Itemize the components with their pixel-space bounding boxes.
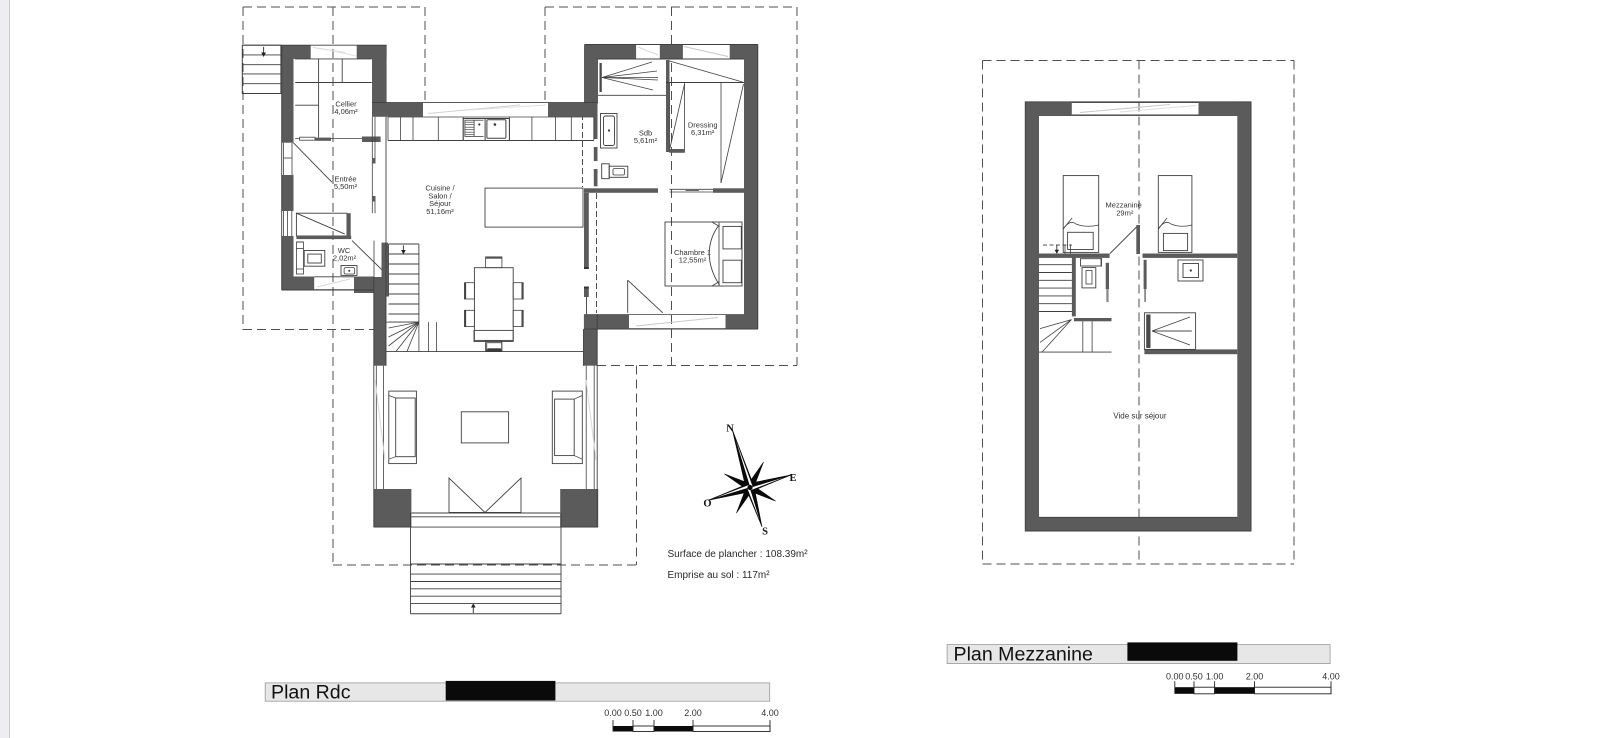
svg-text:1.00: 1.00 <box>1206 672 1224 682</box>
svg-text:5,61m²: 5,61m² <box>634 136 658 145</box>
svg-text:4.00: 4.00 <box>761 708 779 718</box>
svg-text:0.50: 0.50 <box>624 708 642 718</box>
svg-text:5,50m²: 5,50m² <box>334 182 358 191</box>
svg-text:6,31m²: 6,31m² <box>691 128 715 137</box>
svg-text:Plan Rdc: Plan Rdc <box>271 681 351 703</box>
svg-text:Plan Mezzanine: Plan Mezzanine <box>954 644 1094 666</box>
svg-text:0.00: 0.00 <box>1166 672 1184 682</box>
svg-text:4.00: 4.00 <box>1322 672 1340 682</box>
svg-text:29m²: 29m² <box>1116 208 1134 217</box>
svg-text:2.00: 2.00 <box>684 708 702 718</box>
svg-text:1.00: 1.00 <box>645 708 663 718</box>
svg-text:Vide sur séjour: Vide sur séjour <box>1113 411 1167 420</box>
svg-text:S: S <box>762 527 768 538</box>
svg-text:0.00: 0.00 <box>604 708 622 718</box>
svg-text:0.50: 0.50 <box>1185 672 1203 682</box>
svg-text:Emprise au sol : 117m²: Emprise au sol : 117m² <box>668 570 771 581</box>
svg-text:12,55m²: 12,55m² <box>679 256 707 265</box>
svg-text:2.00: 2.00 <box>1246 672 1264 682</box>
svg-text:N: N <box>726 424 734 435</box>
svg-text:E: E <box>789 473 796 484</box>
svg-text:51,16m²: 51,16m² <box>426 207 454 216</box>
svg-text:Surface de plancher : 108.39m²: Surface de plancher : 108.39m² <box>668 549 809 560</box>
svg-text:4,06m²: 4,06m² <box>334 107 358 116</box>
svg-text:O: O <box>703 499 711 510</box>
svg-text:2,02m²: 2,02m² <box>333 254 357 263</box>
